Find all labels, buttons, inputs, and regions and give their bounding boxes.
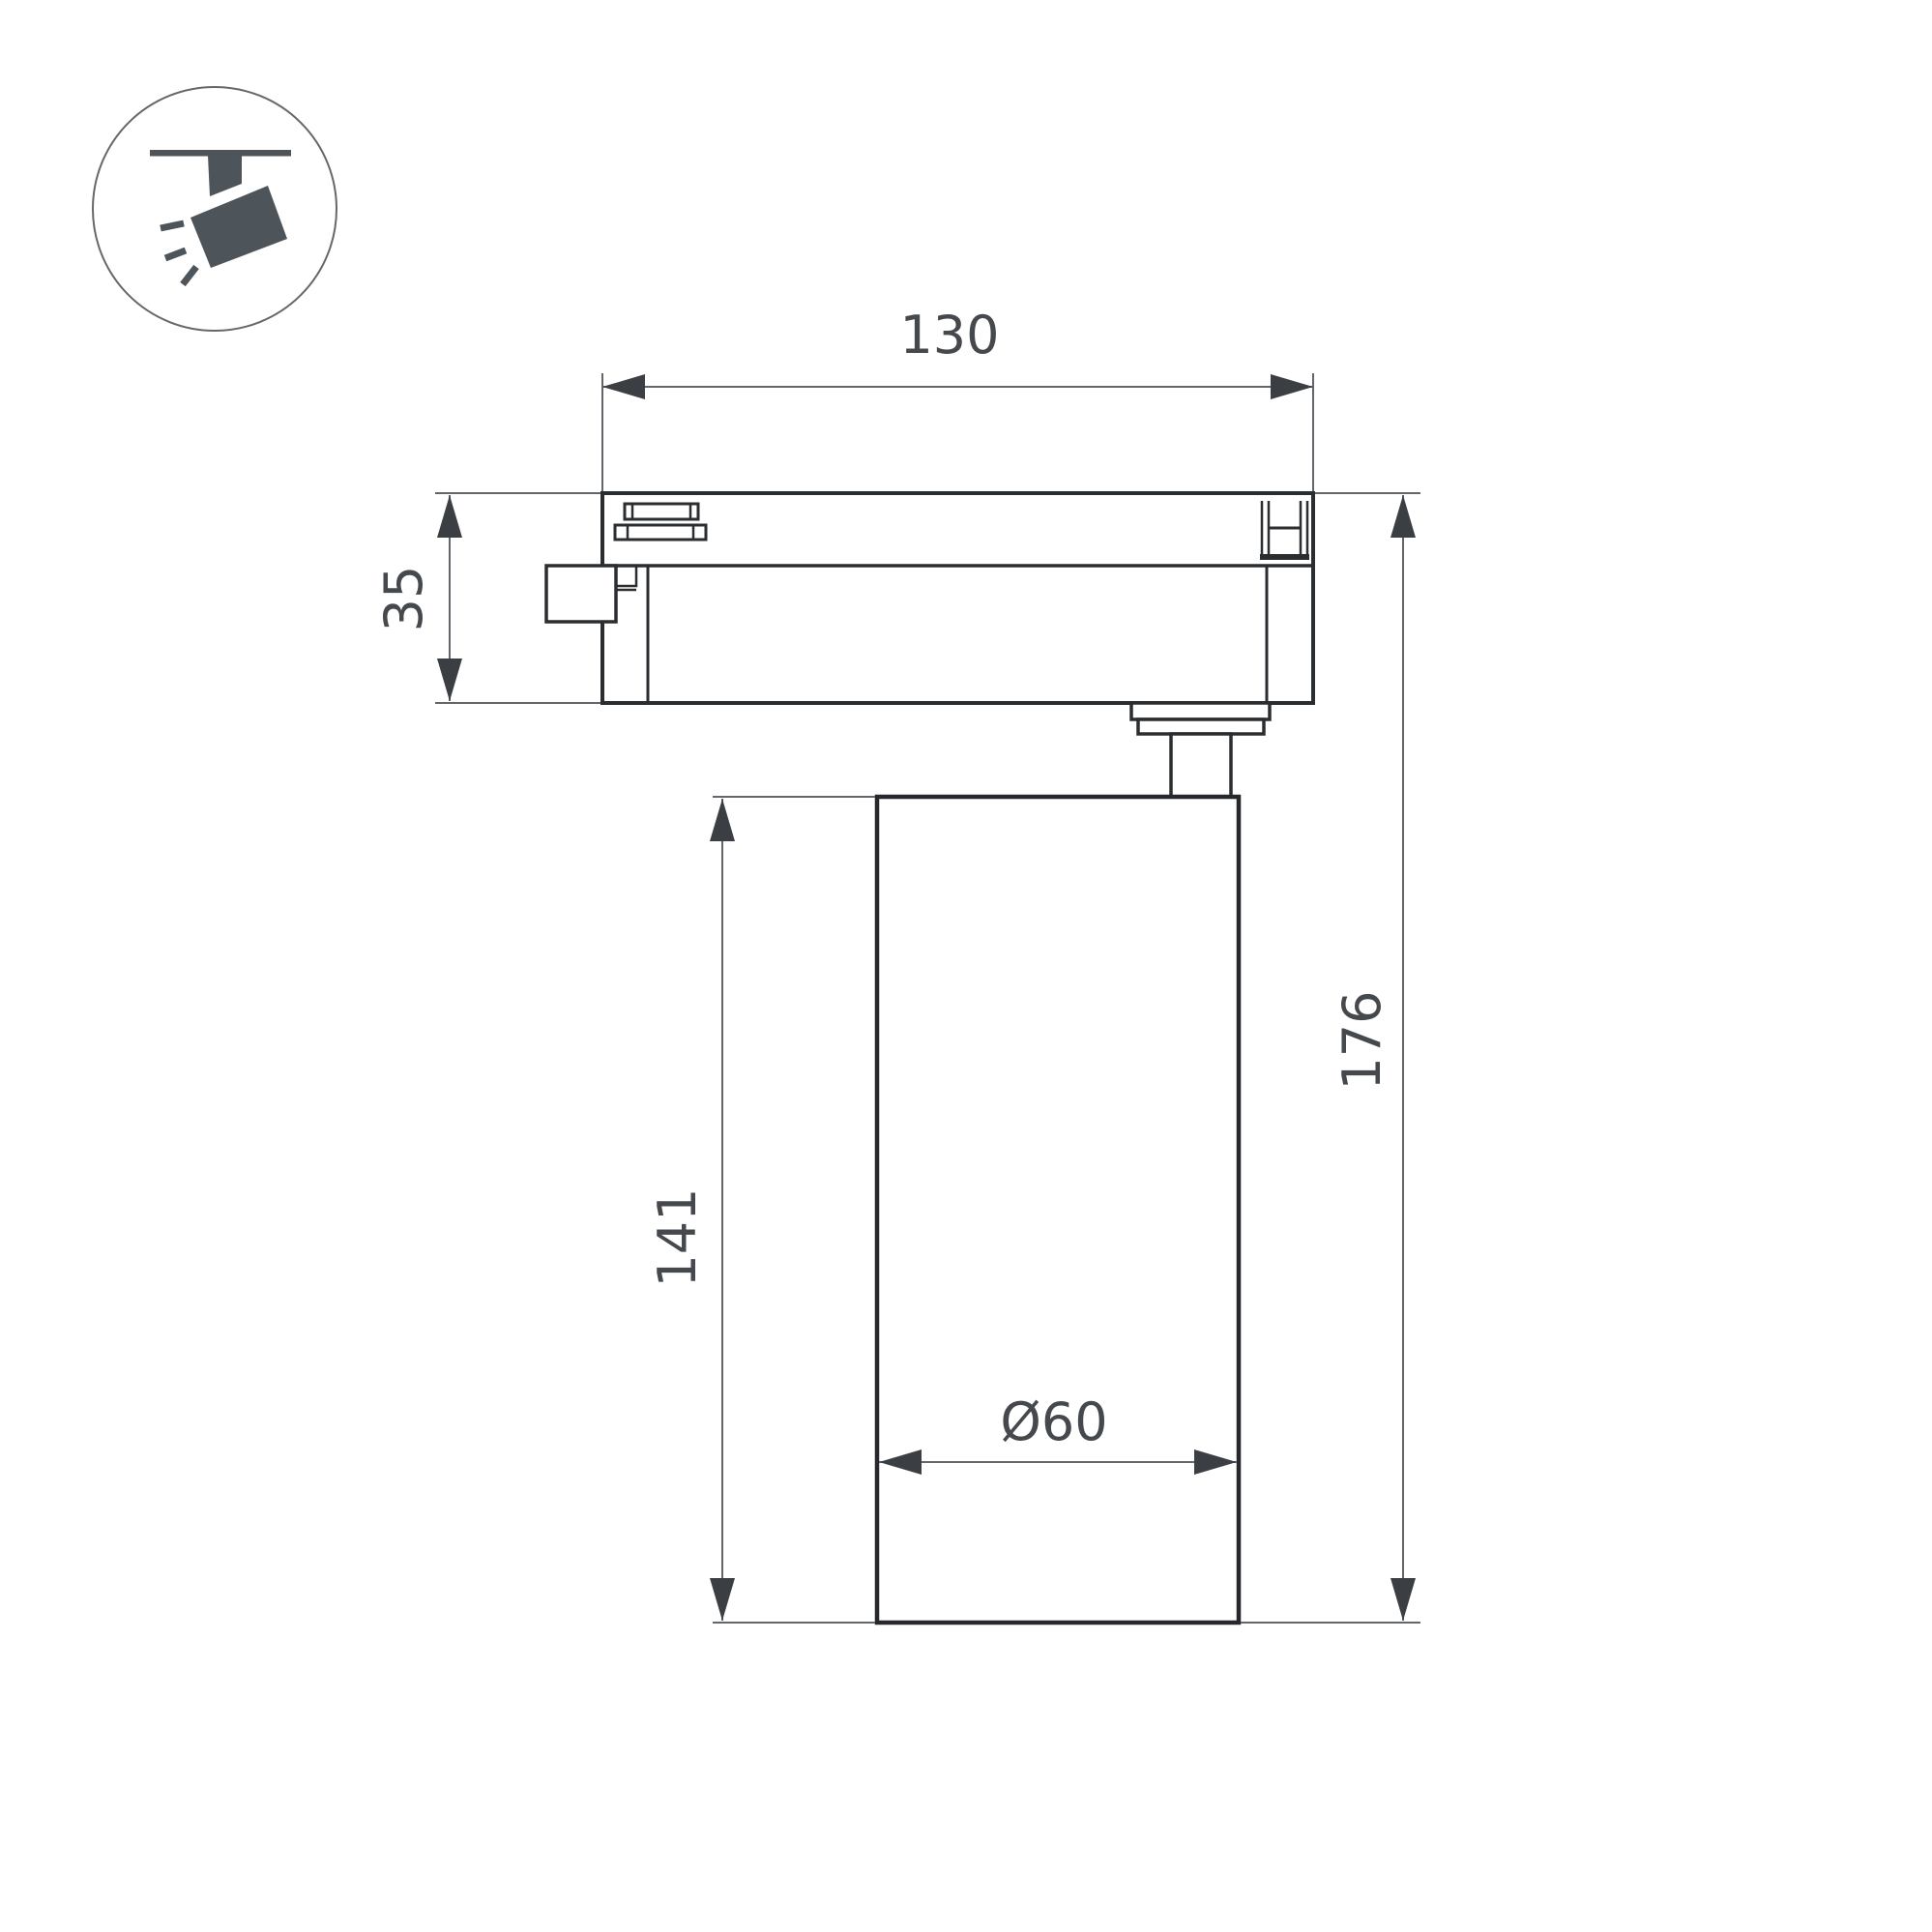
technical-drawing-canvas: 130 35 141 176 [0, 0, 1932, 1932]
icon-track-bar [150, 150, 291, 157]
track-adapter-body [602, 493, 1313, 703]
dim-60-label: Ø60 [1000, 1391, 1107, 1452]
pivot-stem [1171, 734, 1231, 797]
dim-130-label: 130 [899, 305, 999, 366]
dim-176-label: 176 [1332, 990, 1392, 1090]
pivot-step-lower [1138, 719, 1264, 734]
lamp-body-cylinder [877, 797, 1239, 1623]
pivot-step-upper [1131, 703, 1270, 719]
dim-35-label: 35 [373, 566, 434, 632]
dim-141-label: 141 [647, 1187, 708, 1287]
adapter-latch-lever [546, 566, 616, 622]
